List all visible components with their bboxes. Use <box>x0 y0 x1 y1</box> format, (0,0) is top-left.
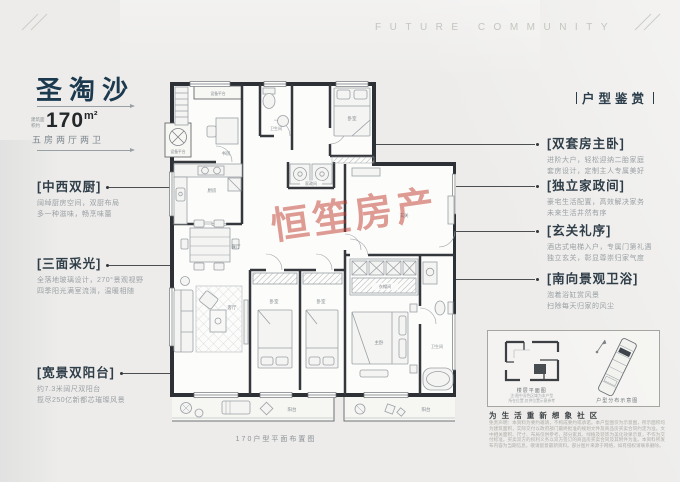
top-wash-texture <box>120 0 540 80</box>
appreciation-bar-left <box>576 92 577 104</box>
appreciation-label: 户型鉴赏 <box>582 88 648 107</box>
annotation-line: 泡着浴缸赏风景 <box>547 291 680 302</box>
annotation-dual-kitchen: [中西双厨] 阔绰厨房空间，双厨布局 多一种滋味，畅烹味蕾 <box>37 180 171 220</box>
future-community-label: FUTURE COMMUNITY <box>375 22 616 33</box>
north-arrow-icon <box>596 340 607 353</box>
area-prefix: 建筑面积约 <box>31 117 46 128</box>
room-label-balcony-sw: 阳台 <box>288 406 297 413</box>
floorplan-drawing: 设备平台 设备平台 书房 卫生间 卧室 家政间 厨房 餐厅 客厅 卧室 卧室 主… <box>164 76 456 428</box>
leader-dot <box>106 264 109 267</box>
annotation-title: [三面采光] <box>37 257 171 271</box>
room-label-kitchen: 厨房 <box>208 187 217 194</box>
area-value: 170 <box>46 110 84 132</box>
floorplan-poster: FUTURE COMMUNITY 圣淘沙 建筑面积约 170 m² 五房两厅两卫… <box>0 0 680 482</box>
area-unit: m² <box>84 110 97 122</box>
annotation-three-side-light: [三面采光] 全落地玻璃设计，270°景观视野 四季阳光满室流淌，温暖相随 <box>37 257 171 297</box>
room-label-equip-top: 设备平台 <box>210 91 225 96</box>
room-label-bedroom-s1: 卧室 <box>270 298 279 305</box>
leader-dot <box>536 278 539 281</box>
leader-dot <box>536 230 539 233</box>
room-label-laundry: 家政间 <box>305 180 317 186</box>
area-row: 建筑面积约 170 m² <box>31 110 98 132</box>
annotation-title: [独立家政间] <box>547 179 680 193</box>
room-label-bedroom-s2: 卧室 <box>317 298 326 305</box>
leader-dot <box>536 143 539 146</box>
appreciation-bar-right <box>653 92 654 104</box>
annotation-line: 套房设计，定制主人专属美好 <box>547 167 680 178</box>
leader-dot <box>536 185 539 188</box>
annotation-master-suites: [双套房主卧] 进阶大户，轻松迎纳二胎家庭 套房设计，定制主人专属美好 <box>547 137 680 177</box>
legal-disclaimer: 免责声明：本资料为要约邀请，不构成要约或承诺。本户型图仅为示意图，所示面积均为建… <box>489 420 665 449</box>
annotation-title: [双套房主卧] <box>547 137 680 151</box>
distribution-cell: 户型分布示意图 <box>587 334 647 404</box>
annotation-line: 约7.3米阔尺双阳台 <box>37 385 171 396</box>
annotation-line: 全落地玻璃设计，270°景观视野 <box>37 276 171 287</box>
annotation-line: 未来生活井然有序 <box>547 209 680 220</box>
annotation-line: 四季阳光满室流淌，温暖相随 <box>37 287 171 298</box>
room-label-equip-left: 设备平台 <box>170 149 185 154</box>
annotation-title: [玄关礼序] <box>547 224 680 238</box>
location-inset-box: 楼层平面图 注:图中深色区域为本户型 所在位置,仅供位置示意参考 户型分布示意图 <box>487 330 660 407</box>
annotation-line: 豪宅生活配置，高效解决家务 <box>547 198 680 209</box>
annotation-line: 独立玄关，彰显尊崇归家气度 <box>547 254 680 265</box>
corner-deco-left <box>20 12 66 32</box>
room-label-bedroom-ne: 卧室 <box>348 115 357 122</box>
floorplate-note: 所在位置,仅供位置示意参考 <box>508 399 555 404</box>
annotation-laundry-room: [独立家政间] 豪宅生活配置，高效解决家务 未来生活井然有序 <box>547 179 680 219</box>
title-divider-top <box>37 106 130 107</box>
annotation-foyer: [玄关礼序] 酒店式电梯入户，专属门第礼遇 独立玄关，彰显尊崇归家气度 <box>547 224 680 264</box>
room-label-study: 书房 <box>222 150 231 157</box>
annotation-view-bathroom: [南向景观卫浴] 泡着浴缸赏风景 扫除每天归家的风尘 <box>547 272 680 312</box>
annotation-title: [南向景观卫浴] <box>547 272 680 286</box>
room-label-living: 客厅 <box>228 304 237 311</box>
leader-dot <box>120 372 123 375</box>
floorplate-caption: 楼层平面图 <box>517 387 547 394</box>
annotation-double-balcony: [宽景双阳台] 约7.3米阔尺双阳台 揽尽250亿新都芯璀璨风景 <box>37 366 171 406</box>
floorplate-cell: 楼层平面图 注:图中深色区域为本户型 所在位置,仅供位置示意参考 <box>500 334 564 403</box>
room-label-bath1: 卫生间 <box>270 125 282 131</box>
annotation-line: 阔绰厨房空间，双厨布局 <box>37 199 171 210</box>
annotation-line: 揽尽250亿新都芯璀璨风景 <box>37 396 171 407</box>
annotation-line: 扫除每天归家的风尘 <box>547 302 680 313</box>
room-label-closet: 衣帽间 <box>379 283 392 290</box>
project-name: 圣淘沙 <box>36 70 135 107</box>
plan-caption: 170户型平面布置图 <box>130 434 422 444</box>
annotation-line: 多一种滋味，畅烹味蕾 <box>37 210 171 221</box>
room-label-dining: 餐厅 <box>232 243 241 250</box>
corner-deco-right <box>616 12 662 32</box>
floorplate-mini-diagram <box>500 334 564 386</box>
appreciation-header: 户型鉴赏 <box>576 88 654 107</box>
room-label-master: 主卧 <box>375 339 384 346</box>
room-label-bath2: 卫生间 <box>431 343 443 349</box>
leader-dot <box>106 186 109 189</box>
distribution-caption: 户型分布示意图 <box>596 397 638 404</box>
annotation-line: 酒店式电梯入户，专属门第礼遇 <box>547 243 680 254</box>
layout-desc: 五房两厅两卫 <box>32 133 104 146</box>
annotation-line: 进阶大户，轻松迎纳二胎家庭 <box>547 156 680 167</box>
room-label-balcony-se: 阳台 <box>422 406 431 413</box>
unit-distribution-diagram <box>587 334 647 396</box>
title-divider-bottom <box>37 150 130 151</box>
